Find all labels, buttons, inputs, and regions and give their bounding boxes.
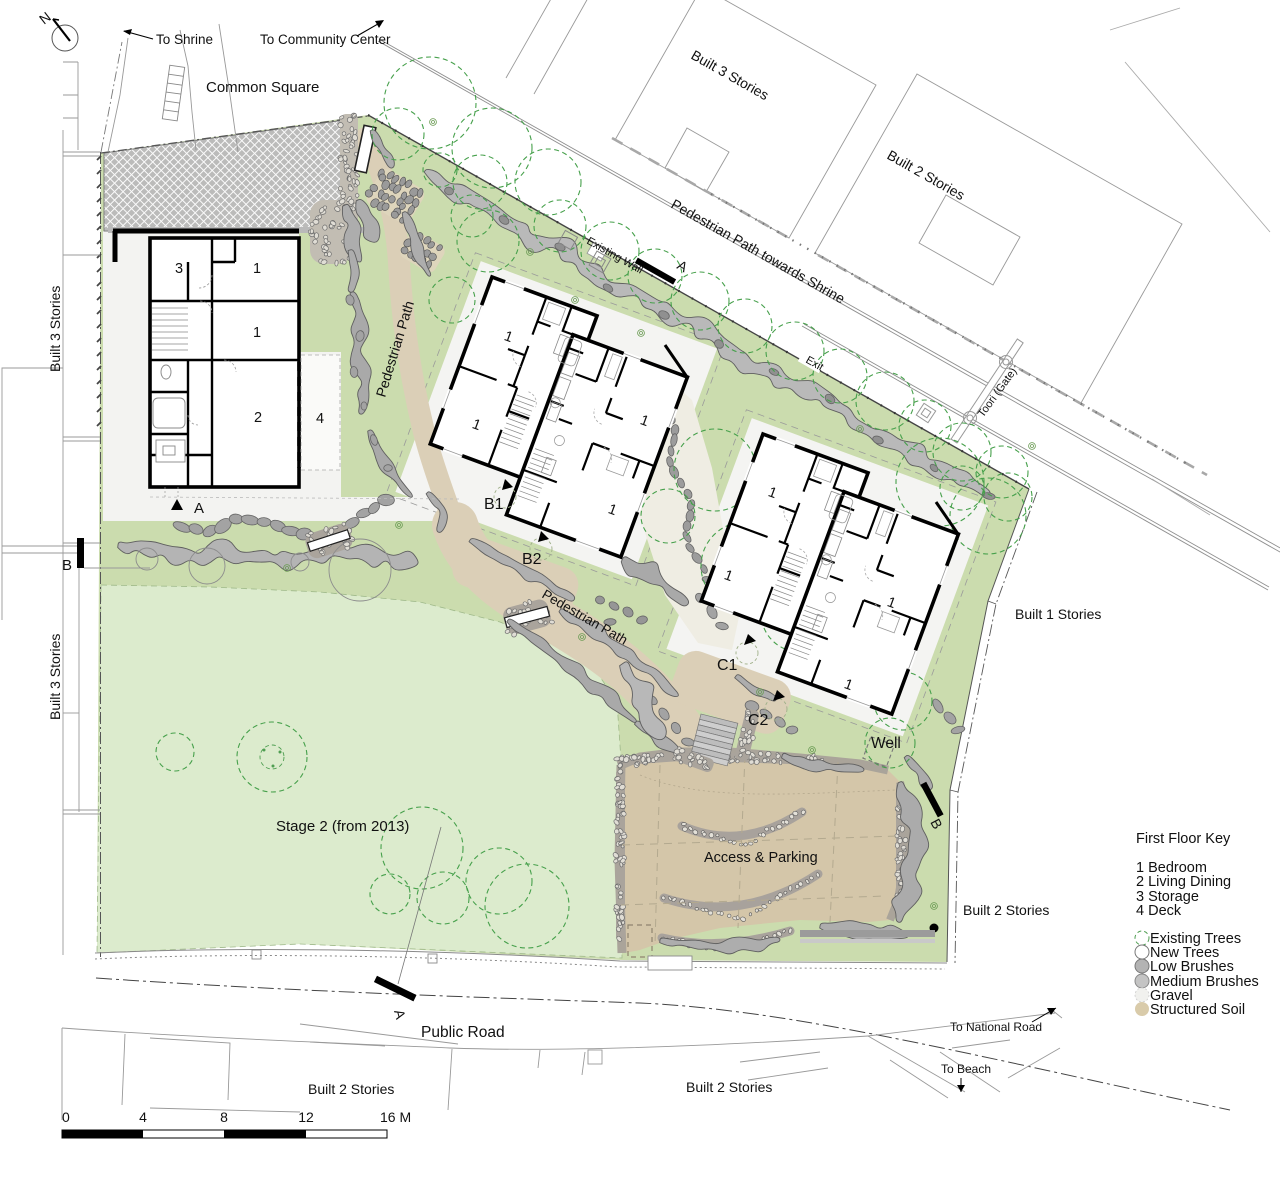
svg-text:C2: C2	[748, 712, 769, 729]
svg-text:To National Road: To National Road	[950, 1020, 1042, 1034]
svg-text:To Community Center: To Community Center	[260, 32, 391, 47]
svg-text:Built 3 Stories: Built 3 Stories	[47, 634, 63, 720]
svg-text:16 M: 16 M	[380, 1109, 411, 1125]
svg-text:4 Deck: 4 Deck	[1136, 903, 1182, 919]
svg-text:B2: B2	[522, 551, 542, 568]
svg-text:Well: Well	[871, 735, 901, 752]
svg-text:Built 2 Stories: Built 2 Stories	[963, 902, 1049, 918]
svg-text:3: 3	[175, 261, 183, 277]
svg-text:4: 4	[316, 411, 324, 427]
svg-text:2: 2	[254, 410, 262, 426]
svg-text:Stage 2 (from 2013): Stage 2 (from 2013)	[276, 818, 409, 835]
svg-text:A: A	[194, 500, 204, 517]
svg-text:B: B	[62, 557, 72, 574]
svg-text:Built 2 Stories: Built 2 Stories	[686, 1079, 772, 1095]
svg-text:8: 8	[220, 1109, 228, 1125]
svg-text:12: 12	[298, 1109, 314, 1125]
svg-text:0: 0	[62, 1109, 70, 1125]
svg-text:2 Living Dining: 2 Living Dining	[1136, 874, 1231, 890]
svg-text:1: 1	[253, 261, 261, 277]
svg-text:Low Brushes: Low Brushes	[1150, 959, 1234, 975]
svg-text:1: 1	[253, 325, 261, 341]
svg-text:Built 2 Stories: Built 2 Stories	[308, 1081, 394, 1097]
svg-text:Structured Soil: Structured Soil	[1150, 1002, 1245, 1018]
svg-text:C1: C1	[717, 657, 738, 674]
svg-text:To Beach: To Beach	[941, 1062, 991, 1076]
svg-text:First Floor Key: First Floor Key	[1136, 831, 1231, 847]
svg-text:Public Road: Public Road	[421, 1024, 505, 1041]
svg-text:Built 1 Stories: Built 1 Stories	[1015, 606, 1101, 622]
svg-text:To Shrine: To Shrine	[156, 32, 213, 47]
svg-text:Built 3 Stories: Built 3 Stories	[47, 286, 63, 372]
svg-text:Common Square: Common Square	[206, 79, 319, 96]
svg-text:B1: B1	[484, 496, 504, 513]
svg-text:Access & Parking: Access & Parking	[704, 850, 818, 866]
svg-text:4: 4	[139, 1109, 147, 1125]
